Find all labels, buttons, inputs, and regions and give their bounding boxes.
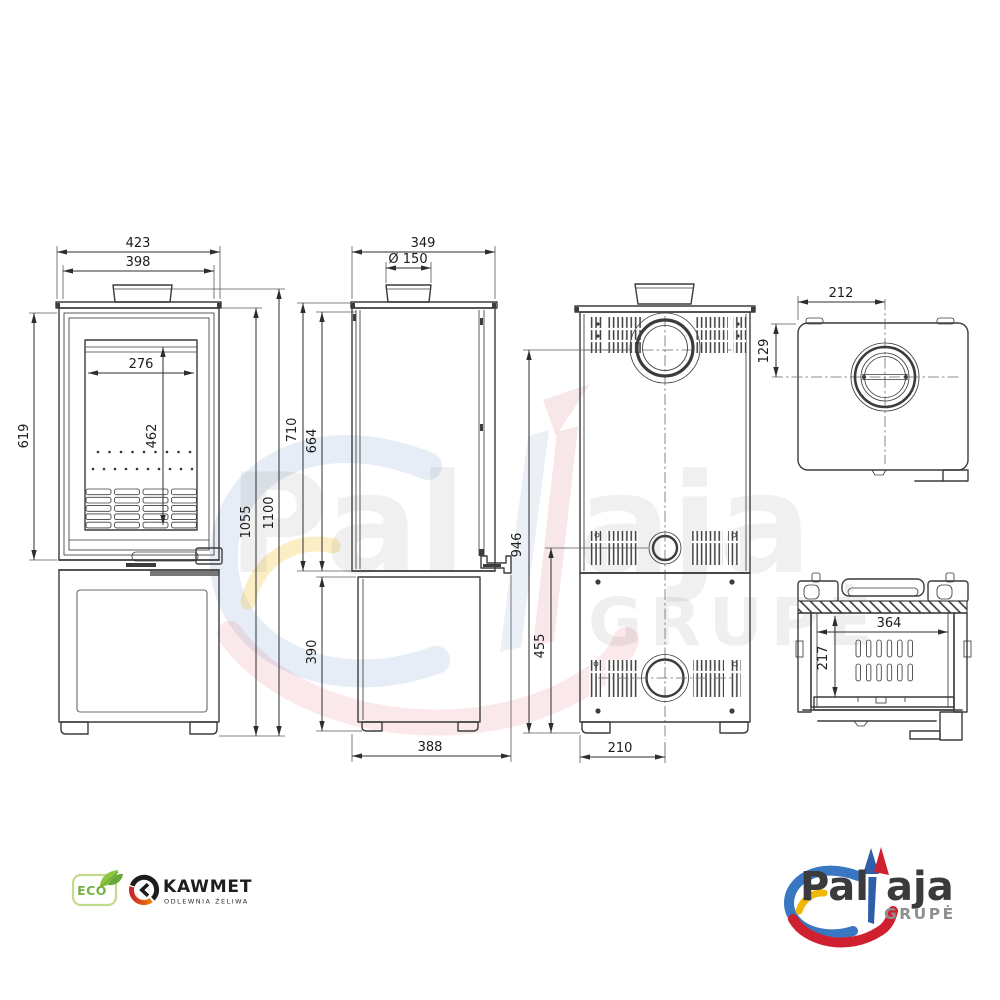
palaja-arrow-shaft [868, 877, 877, 924]
dim-side-flue-diameter: Ø 150 [388, 252, 427, 267]
dim-firebox-interior-width: 364 [877, 616, 902, 631]
front-top-plate [56, 302, 221, 308]
dim-back-base-center-offset: 210 [608, 741, 633, 756]
kawmet-logo: KAWMET ODLEWNIA ŻELIWA [131, 877, 252, 906]
dim-front-overall-width: 423 [126, 236, 151, 251]
front-flue-collar [113, 285, 172, 302]
dim-top-flue-center-from-back: 129 [757, 339, 772, 364]
front-base-panel [77, 590, 207, 712]
dim-front-firebox-section-height: 619 [17, 424, 32, 449]
back-flue-collar [635, 284, 694, 304]
dim-front-glass-width: 276 [129, 357, 154, 372]
top-air-intake-tab [943, 470, 968, 481]
kawmet-subtitle: ODLEWNIA ŻELIWA [164, 897, 249, 906]
eco-logo: ECO [73, 870, 123, 905]
back-top-plate [575, 306, 755, 312]
dim-front-glass-height: 462 [145, 424, 160, 449]
firebox-door-section [814, 697, 954, 710]
dim-side-base-depth: 388 [418, 740, 443, 755]
dim-top-flue-center-from-edge: 212 [829, 286, 854, 301]
stove-technical-drawing: Pal aja GRUPĖ 423 398 276 462 619 [0, 0, 1000, 1000]
palaja-name-right: aja [886, 864, 954, 910]
dim-front-body-width: 398 [126, 255, 151, 270]
dim-side-depth: 349 [411, 236, 436, 251]
watermark-arrow-red-head [543, 384, 590, 436]
dim-back-flue-axis-height: 946 [510, 533, 525, 558]
dim-firebox-interior-depth: 217 [816, 646, 831, 671]
front-air-holes [92, 451, 194, 471]
back-upper-vents [590, 317, 746, 353]
front-left-foot [61, 722, 88, 734]
dim-front-total-height: 1100 [262, 496, 277, 529]
back-left-foot [582, 722, 610, 733]
stove-dimension-sheet: Pal aja GRUPĖ 423 398 276 462 619 [0, 0, 1000, 1000]
side-flue-collar [386, 285, 431, 302]
palaja-name-left: Pal [800, 864, 869, 910]
firebox-air-connector [940, 712, 962, 740]
watermark-subtitle: GRUPĖ [588, 584, 880, 661]
dim-side-door-height: 664 [305, 429, 320, 454]
front-grate [86, 489, 197, 528]
dim-side-upper-height: 710 [285, 418, 300, 443]
side-top-plate [351, 302, 497, 308]
firebox-top-plate-section [798, 601, 967, 613]
palaja-subtitle: GRUPĖ [884, 904, 956, 923]
top-body [798, 323, 968, 470]
palaja-logo: Pal aja GRUPĖ [789, 847, 956, 942]
front-right-foot [190, 722, 217, 734]
back-right-foot [720, 722, 748, 733]
dim-front-body-height: 1055 [239, 505, 254, 538]
dim-side-base-height: 390 [305, 640, 320, 665]
dim-back-rear-outlet-height: 455 [533, 634, 548, 659]
watermark-word-right: aja [578, 444, 812, 605]
kawmet-name: KAWMET [163, 877, 252, 897]
front-base [59, 570, 219, 722]
